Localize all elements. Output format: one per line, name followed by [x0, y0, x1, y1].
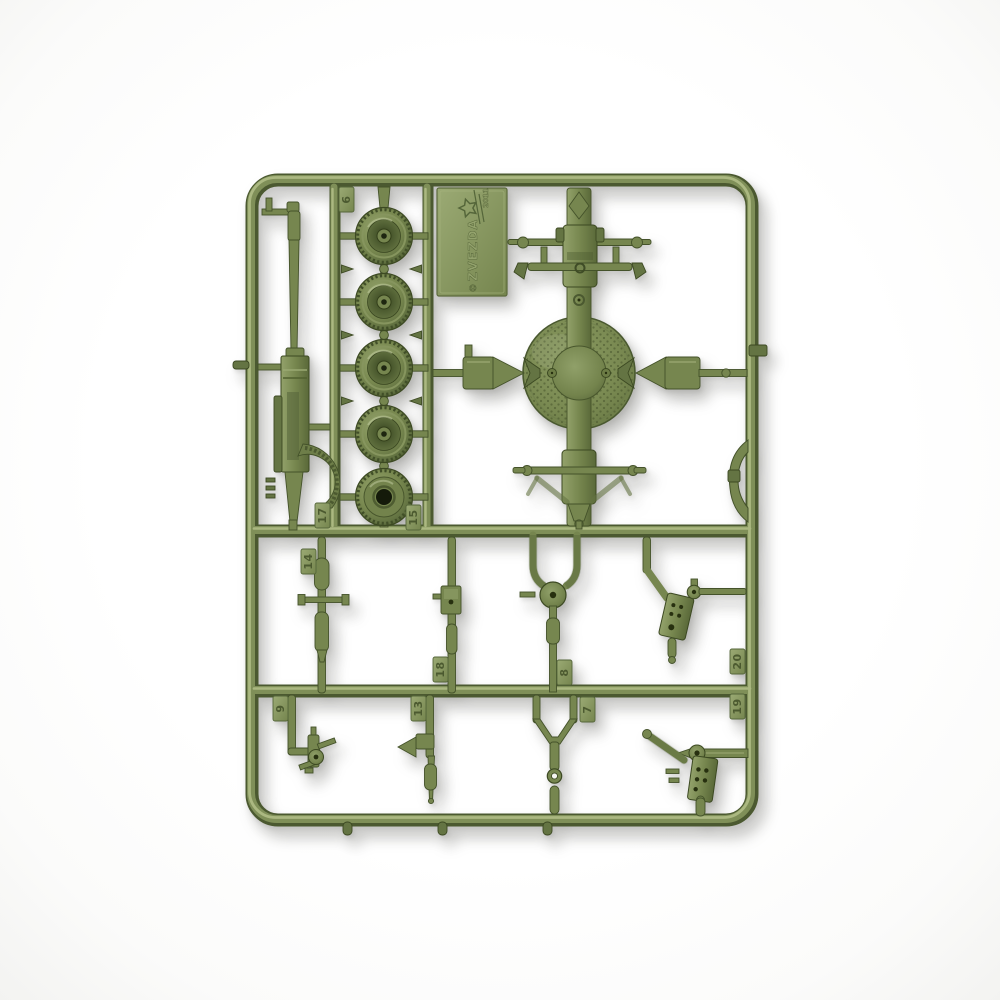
crescent-stub [728, 470, 740, 482]
part-number-tab-7: 7 [580, 697, 595, 722]
plaque-copyright: © [469, 284, 479, 293]
lower-yoke-assembly-part [513, 450, 646, 529]
svg-text:19: 19 [731, 698, 744, 714]
wheel-part-1 [356, 208, 413, 265]
part-number-tab-6: 6 [339, 187, 354, 212]
photo-canvas: © ZVEZDA 2011 [0, 0, 1000, 1000]
wheels-column [340, 187, 428, 527]
fork-part-7 [533, 695, 577, 814]
svg-text:7: 7 [581, 705, 594, 713]
wheel-part-5 [356, 469, 413, 526]
plaque-year: 2011 [482, 188, 490, 208]
sight-part-9 [288, 695, 336, 773]
svg-text:18: 18 [434, 661, 447, 677]
svg-text:9: 9 [274, 704, 287, 712]
part-number-tab-15: 15 [406, 505, 421, 530]
recoil-cylinder-left-part [433, 345, 524, 389]
svg-text:13: 13 [412, 700, 425, 716]
brand-plaque: © ZVEZDA 2011 [437, 188, 507, 296]
part-number-tab-20: 20 [730, 649, 745, 674]
trigger-block-part-19 [643, 730, 749, 817]
part-number-tab-13: 13 [411, 696, 426, 721]
plaque-brand: ZVEZDA [465, 219, 480, 281]
wheel-part-4 [356, 406, 413, 463]
sprue-photo: © ZVEZDA 2011 [0, 0, 1000, 1000]
wheel-part-2 [356, 274, 413, 331]
svg-text:8: 8 [558, 668, 571, 676]
svg-text:15: 15 [407, 509, 420, 525]
part-number-tab-14: 14 [301, 549, 316, 574]
part-number-tab-9: 9 [273, 696, 288, 721]
part-number-tab-17: 17 [315, 503, 330, 528]
svg-text:14: 14 [302, 553, 315, 569]
cradle-part-20 [643, 537, 746, 664]
sprue: © ZVEZDA 2011 [233, 178, 767, 836]
recoil-cylinder-right-part [636, 357, 747, 389]
machine-gun-body-part [258, 198, 340, 530]
svg-text:20: 20 [731, 653, 744, 669]
svg-text:17: 17 [316, 507, 329, 523]
svg-text:6: 6 [340, 195, 353, 203]
part-number-tab-8: 8 [557, 660, 572, 685]
wheel-part-3 [356, 340, 413, 397]
part-number-tab-18: 18 [433, 657, 448, 682]
part-number-tab-19: 19 [730, 694, 745, 719]
upper-yoke-assembly-part [508, 225, 651, 287]
